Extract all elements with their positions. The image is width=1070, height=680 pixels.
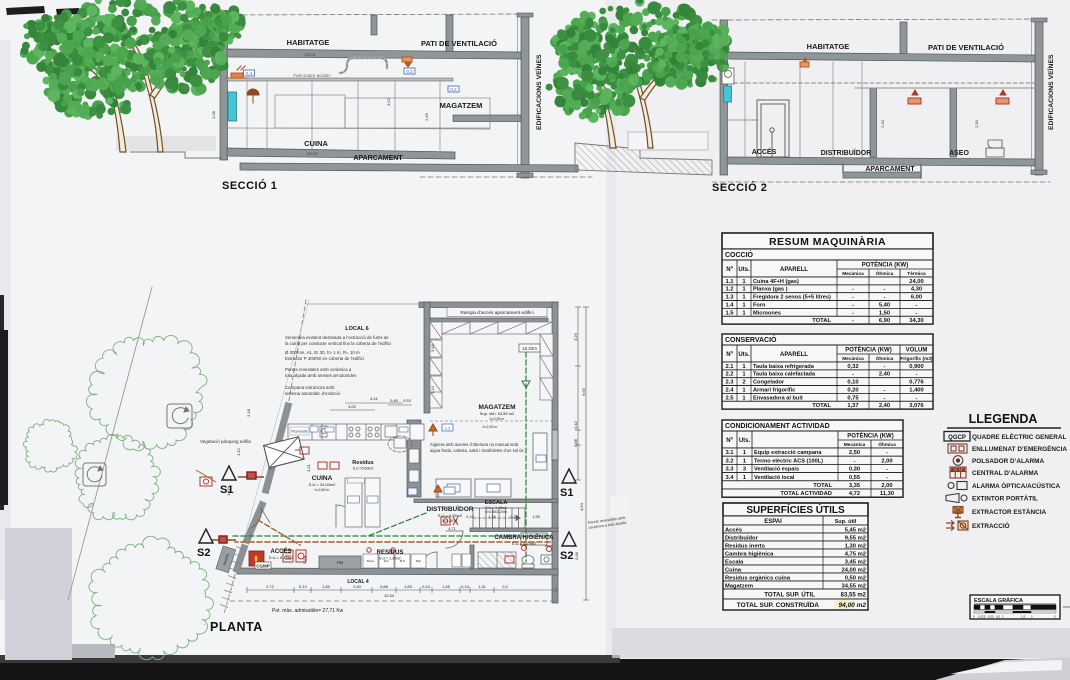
svg-text:0,53: 0,53 [403,398,412,403]
svg-text:3,29: 3,29 [573,332,578,341]
svg-text:h=2,60 m: h=2,60 m [315,488,330,492]
svg-text:QGCP: QGCP [948,435,966,441]
svg-text:Nº: Nº [726,267,733,273]
svg-text:CGMP: CGMP [256,564,270,569]
svg-text:Mecànica: Mecànica [842,271,864,277]
svg-text:Equip extracció campana: Equip extracció campana [754,450,822,456]
svg-text:Planxa (gas ): Planxa (gas ) [753,287,788,293]
svg-text:POTÈNCIA (KW): POTÈNCIA (KW) [847,432,893,440]
svg-text:3.1: 3.1 [725,450,734,456]
svg-text:-: - [916,395,918,401]
svg-text:3,10: 3,10 [430,385,435,394]
svg-text:Cuina: Cuina [725,567,742,573]
svg-text:0,75: 0,75 [847,395,859,401]
svg-text:Mecànica: Mecànica [842,356,864,362]
svg-text:S1: S1 [560,487,573,499]
svg-text:Nº: Nº [726,352,733,358]
svg-text:6,90: 6,90 [879,318,890,324]
svg-text:SUPERFÍCIES ÚTILS: SUPERFÍCIES ÚTILS [746,503,845,516]
svg-text:9,55 m2: 9,55 m2 [845,535,866,541]
svg-text:0,54: 0,54 [302,555,307,564]
svg-text:Taula baixa refrigerada: Taula baixa refrigerada [753,364,815,370]
svg-text:4,75 m2: 4,75 m2 [845,551,866,557]
svg-text:CUINA: CUINA [312,475,333,482]
svg-text:TOTAL SUP. CONSTRUÏDA: TOTAL SUP. CONSTRUÏDA [737,601,820,609]
svg-text:Campana extractora amb: Campana extractora amb [285,385,335,390]
svg-text:COCCIÓ: COCCIÓ [725,250,754,259]
svg-text:0,10: 0,10 [461,584,470,589]
svg-text:0,125: 0,125 [978,615,986,619]
svg-text:0,25: 0,25 [988,615,994,619]
svg-text:1.3: 1.3 [725,295,734,301]
svg-text:-: - [852,295,854,301]
svg-text:83,55 m2: 83,55 m2 [841,593,867,599]
svg-text:4,54: 4,54 [579,502,584,511]
svg-text:VOLUM: VOLUM [906,348,928,354]
svg-text:Xemeneia existent destinada a: Xemeneia existent destinada a l’extracci… [285,335,389,340]
svg-text:ALARMA ÒPTICA/ACÚSTICA: ALARMA ÒPTICA/ACÚSTICA [972,481,1061,490]
svg-text:MAGATZEM: MAGATZEM [478,404,515,411]
svg-text:LOCAL 6: LOCAL 6 [345,326,368,332]
svg-text:Armari frigorífic: Armari frigorífic [753,387,795,393]
svg-text:0,10: 0,10 [466,515,473,519]
svg-text:-: - [884,395,886,401]
svg-text:0,50 m2: 0,50 m2 [845,575,866,581]
svg-text:11,30: 11,30 [880,491,894,497]
svg-text:3,62: 3,62 [386,97,391,106]
svg-text:0,900: 0,900 [909,364,924,370]
svg-text:0,4: 0,4 [246,71,253,76]
svg-text:Residus orgànics cuina: Residus orgànics cuina [725,575,791,581]
svg-text:1.4: 1.4 [725,302,734,308]
svg-text:APARELL: APARELL [780,352,808,358]
svg-text:3,35: 3,35 [849,483,861,489]
svg-text:1,83: 1,83 [404,584,413,589]
svg-text:4,41: 4,41 [370,396,379,401]
svg-text:1,12: 1,12 [236,447,241,456]
svg-text:EXTRACTOR ESTÀNCIA: EXTRACTOR ESTÀNCIA [972,507,1046,516]
svg-text:-: - [886,467,888,473]
svg-text:Taula baixa calefactada: Taula baixa calefactada [753,372,816,378]
svg-text:1,5: 1,5 [1021,615,1026,619]
svg-text:1.2: 1.2 [725,287,733,293]
svg-text:2,18: 2,18 [246,408,251,417]
svg-text:HABITATGE: HABITATGE [287,38,330,47]
svg-text:Distribuïdor: Distribuïdor [725,535,759,541]
svg-text:6,00: 6,00 [911,295,922,301]
svg-text:Residus: Residus [352,460,373,466]
svg-text:ASEO: ASEO [949,150,969,157]
svg-text:S.U.= 4,75m2: S.U.= 4,75m2 [512,541,537,546]
svg-text:Nº: Nº [726,438,733,444]
svg-text:TOTAL: TOTAL [812,403,831,409]
svg-text:2,00: 2,00 [881,458,892,464]
svg-text:1,31: 1,31 [478,584,487,589]
svg-text:-: - [884,295,886,301]
svg-text:1.5: 1.5 [725,310,734,316]
svg-text:0,20: 0,20 [847,387,858,393]
svg-text:Frigorífic (m3): Frigorífic (m3) [900,356,933,362]
svg-text:PM: PM [337,560,343,565]
svg-text:S.U.= 24,00m2: S.U.= 24,00m2 [309,482,337,487]
svg-text:-: - [854,458,856,464]
svg-text:Parets revestides amb ceràmica: Parets revestides amb ceràmica a [285,367,352,372]
svg-text:2.5: 2.5 [725,395,734,401]
svg-text:4,21: 4,21 [306,463,311,472]
svg-text:Residus inerts: Residus inerts [725,543,765,549]
svg-text:0,88: 0,88 [380,584,389,589]
svg-text:la cuina per conducte vertical: la cuina per conducte vertical fins la c… [285,341,391,346]
svg-text:0,2: 0,2 [450,87,457,92]
svg-text:1,30 m2: 1,30 m2 [845,543,866,549]
svg-text:Magatzem: Magatzem [725,583,753,589]
svg-text:2,30: 2,30 [974,119,979,128]
svg-text:EDIFICACIONS VEÏNES: EDIFICACIONS VEÏNES [1047,54,1055,130]
svg-text:0,5: 0,5 [996,615,1001,619]
svg-text:-: - [884,364,886,370]
svg-text:1,83: 1,83 [322,584,331,589]
svg-text:Paper: Paper [367,559,375,563]
svg-text:-: - [852,310,854,316]
svg-text:S.U.= 5,45m2: S.U.= 5,45m2 [269,555,294,560]
svg-text:34,30: 34,30 [909,318,924,324]
svg-text:5,45 m2: 5,45 m2 [845,527,866,533]
svg-text:Forn: Forn [753,302,766,308]
svg-text:Pica neutra: Pica neutra [291,430,307,434]
svg-text:CAMBRA HIGIÈNICA: CAMBRA HIGIÈNICA [494,533,554,541]
svg-text:3.4: 3.4 [725,475,734,481]
svg-text:0,10: 0,10 [299,584,308,589]
svg-text:Pot. màx. admissible= 27,71 Kw: Pot. màx. admissible= 27,71 Kw [272,608,344,614]
svg-text:2.4: 2.4 [725,387,734,393]
svg-text:Sup. útil: Sup. útil [835,519,857,525]
svg-text:1,45: 1,45 [442,584,451,589]
svg-text:HABITATGE: HABITATGE [807,42,850,51]
svg-text:24,00: 24,00 [909,279,924,285]
svg-text:EDIFICACIONS VEÏNES: EDIFICACIONS VEÏNES [535,54,543,130]
svg-text:-: - [884,287,886,293]
svg-text:S.U.=0,50m2: S.U.=0,50m2 [353,467,374,471]
svg-text:Cambra higiènica: Cambra higiènica [725,551,774,557]
svg-text:Rampa d’accés aparcament edifi: Rampa d’accés aparcament edifici [460,310,533,316]
svg-text:PATI DE VENTILACIÓ: PATI DE VENTILACIÓ [421,39,497,48]
svg-text:-: - [852,302,854,308]
svg-text:h=1,65 m: h=1,65 m [443,519,458,523]
svg-text:3,00: 3,00 [348,404,357,409]
svg-text:TOTAL: TOTAL [813,483,832,489]
svg-text:tota alçada amb arestes arrodo: tota alçada amb arestes arrodonides [285,373,357,378]
svg-text:S2: S2 [197,547,210,559]
svg-text:3,45 m2: 3,45 m2 [845,559,866,565]
svg-text:CONSERVACIÓ: CONSERVACIÓ [725,335,777,344]
svg-text:1,50: 1,50 [879,310,890,316]
svg-text:2,72: 2,72 [266,584,275,589]
svg-text:5,40: 5,40 [879,302,890,308]
svg-text:2,08: 2,08 [211,110,216,119]
svg-text:-: - [884,387,886,393]
svg-text:0,10: 0,10 [847,380,858,386]
svg-text:1,400: 1,400 [909,387,924,393]
svg-text:2,40: 2,40 [353,584,362,589]
svg-text:Vegetació pàrquing edifici: Vegetació pàrquing edifici [200,439,251,444]
svg-text:Sup. útil= 34,55 m2: Sup. útil= 34,55 m2 [480,411,515,416]
svg-text:3.3: 3.3 [725,467,734,473]
svg-text:SECCIÓ 1: SECCIÓ 1 [222,179,277,192]
svg-text:aigua freda, calenta, sabó i t: aigua freda, calenta, sabó i tovallolete… [430,448,524,453]
svg-text:S.U.= 1,30m2: S.U.= 1,30m2 [379,557,401,561]
svg-text:Congelador: Congelador [753,380,785,386]
svg-text:DISTRIBUÏDOR: DISTRIBUÏDOR [821,149,872,157]
svg-text:Extractor P 400/90 en coberta: Extractor P 400/90 en coberta de l’edifi… [285,356,364,361]
svg-text:DISTRIBUÏDOR: DISTRIBUÏDOR [427,505,474,513]
svg-text:POLSADOR D’ALARMA: POLSADOR D’ALARMA [972,458,1044,465]
svg-text:0,10: 0,10 [422,584,431,589]
svg-text:ENLLUMENAT D’EMERGÈNCIA: ENLLUMENAT D’EMERGÈNCIA [972,444,1067,453]
svg-text:Mecànica: Mecànica [844,442,866,448]
svg-text:1,45: 1,45 [488,515,495,519]
svg-text:4,71: 4,71 [448,527,455,531]
svg-text:QUADRE ELÈCTRIC GENERAL: QUADRE ELÈCTRIC GENERAL [972,432,1067,441]
svg-text:h=2,35 m: h=2,35 m [490,417,505,421]
svg-text:APARCAMENT: APARCAMENT [353,155,403,162]
svg-text:3.2: 3.2 [725,458,733,464]
svg-text:0,55: 0,55 [849,475,861,481]
svg-text:CONDICIONAMENT ACTIVIDAD: CONDICIONAMENT ACTIVIDAD [725,423,830,430]
svg-text:1.1: 1.1 [725,279,734,285]
svg-text:2.2: 2.2 [725,372,733,378]
svg-text:Termo elèctric ACS (100L): Termo elèctric ACS (100L) [754,458,823,464]
svg-text:-: - [916,310,918,316]
svg-text:2.3: 2.3 [725,380,734,386]
svg-text:-: - [916,302,918,308]
svg-text:0,30: 0,30 [849,467,860,473]
svg-text:ESPAI: ESPAI [764,519,782,525]
svg-text:CUINA: CUINA [304,139,328,148]
svg-text:3,076: 3,076 [909,403,924,409]
svg-text:MAGATZEM: MAGATZEM [440,101,483,110]
svg-text:600,35: 600,35 [307,152,318,156]
svg-text:EXTRACCIÓ: EXTRACCIÓ [972,521,1010,530]
svg-text:2,50: 2,50 [849,450,860,456]
svg-text:TOTAL ACTIVIDAD: TOTAL ACTIVIDAD [780,491,832,497]
svg-text:PATI DE VENTILACIÓ: PATI DE VENTILACIÓ [928,43,1004,52]
svg-text:Reb: Reb [416,559,422,563]
svg-text:0,10: 0,10 [510,515,517,519]
svg-text:94,00 m2: 94,00 m2 [839,602,867,609]
svg-text:Cuina 4F+H (gas): Cuina 4F+H (gas) [753,279,799,285]
svg-text:0,776: 0,776 [909,380,924,386]
svg-text:0,88: 0,88 [573,438,578,447]
svg-text:2,60: 2,60 [424,112,429,121]
svg-text:RESUM MAQUINÀRIA: RESUM MAQUINÀRIA [769,235,886,248]
svg-text:CENTRAL D’ALARMA: CENTRAL D’ALARMA [972,470,1039,477]
svg-text:POTÈNCIA (KW): POTÈNCIA (KW) [845,346,891,354]
svg-text:1,55: 1,55 [532,515,539,519]
svg-text:18,20m: 18,20m [522,346,537,351]
svg-text:-: - [886,450,888,456]
svg-text:0,2: 0,2 [502,584,508,589]
svg-text:2,40: 2,40 [879,403,890,409]
svg-text:h=0,65/2,20m: h=0,65/2,20m [485,510,507,514]
svg-text:-: - [886,475,888,481]
svg-text:Ventilació espais: Ventilació espais [754,467,799,473]
svg-text:EXTINTOR PORTÀTIL: EXTINTOR PORTÀTIL [972,494,1038,503]
svg-text:1,3: 1,3 [445,426,451,431]
svg-text:S2: S2 [560,550,573,562]
svg-text:S.U.= 9,55m2: S.U.= 9,55m2 [438,513,463,518]
svg-text:ACCÉS: ACCÉS [752,147,777,156]
svg-text:Aigüera amb aixetes d’obertura: Aigüera amb aixetes d’obertura no manual… [430,442,519,447]
svg-text:601,06: 601,06 [305,53,316,57]
svg-text:RESIDUS: RESIDUS [377,550,404,556]
svg-text:-: - [916,372,918,378]
svg-text:2,40: 2,40 [879,372,890,378]
svg-text:POTÈNCIA (KW): POTÈNCIA (KW) [862,261,908,269]
svg-text:ACCÉS: ACCÉS [270,547,291,555]
svg-text:2: 2 [742,380,745,386]
svg-text:PLANTA: PLANTA [210,620,263,634]
svg-text:Microones: Microones [753,310,781,316]
svg-text:Ventilació local: Ventilació local [754,475,795,481]
svg-text:0,48: 0,48 [574,551,579,560]
svg-text:1,37: 1,37 [847,403,858,409]
svg-text:´: ´ [204,625,206,631]
svg-text:Accés: Accés [725,527,742,533]
svg-text:4,30: 4,30 [911,287,922,293]
svg-text:4,72: 4,72 [849,491,860,497]
svg-text:Tèrmica: Tèrmica [907,271,926,277]
svg-text:Uts.: Uts. [738,352,750,358]
svg-text:-: - [852,372,854,378]
svg-text:0,3: 0,3 [406,69,413,74]
svg-text:Uts.: Uts. [739,438,751,444]
svg-text:Ø 300mm, A1, EI 30, h> 1 m, R=: Ø 300mm, A1, EI 30, h> 1 m, R= 10 m [285,350,360,355]
svg-text:Envasadora al buit: Envasadora al buit [753,395,803,401]
svg-text:M.O: M.O [400,559,406,563]
svg-text:LLEGENDA: LLEGENDA [969,412,1038,426]
svg-text:Uts.: Uts. [738,267,750,273]
svg-text:APARELL: APARELL [780,267,808,273]
svg-text:2.1: 2.1 [725,364,734,370]
svg-text:0,42: 0,42 [573,420,578,429]
svg-text:TOTAL: TOTAL [812,318,831,324]
svg-text:0,32: 0,32 [847,364,858,370]
svg-text:TOTAL SUP. ÚTIL: TOTAL SUP. ÚTIL [764,592,815,599]
svg-text:24,00 m2: 24,00 m2 [842,567,867,573]
svg-text:SECCIÓ 2: SECCIÓ 2 [712,181,767,194]
svg-text:3,45: 3,45 [430,343,435,352]
svg-text:h=2,25 m: h=2,25 m [483,425,498,429]
svg-text:34,55 m2: 34,55 m2 [842,583,867,589]
svg-text:ESCALA GRÀFICA: ESCALA GRÀFICA [974,597,1023,604]
svg-text:-: - [852,287,854,293]
svg-text:2,00: 2,00 [881,483,892,489]
svg-text:2,30: 2,30 [880,119,885,128]
svg-text:-: - [852,318,854,324]
svg-text:0,45: 0,45 [390,398,399,403]
svg-text:12,54: 12,54 [384,593,395,598]
svg-text:Escala: Escala [725,559,744,565]
svg-text:Fals sostre acústic: Fals sostre acústic [293,73,331,78]
svg-text:APARCAMENT: APARCAMENT [865,166,915,173]
svg-text:1,32: 1,32 [226,487,231,496]
svg-text:sistema automàtic d’extinció: sistema automàtic d’extinció [285,391,340,396]
svg-text:9,65: 9,65 [581,387,586,396]
svg-text:Fregidora 2 senos (5+5 litres): Fregidora 2 senos (5+5 litres) [753,295,831,301]
